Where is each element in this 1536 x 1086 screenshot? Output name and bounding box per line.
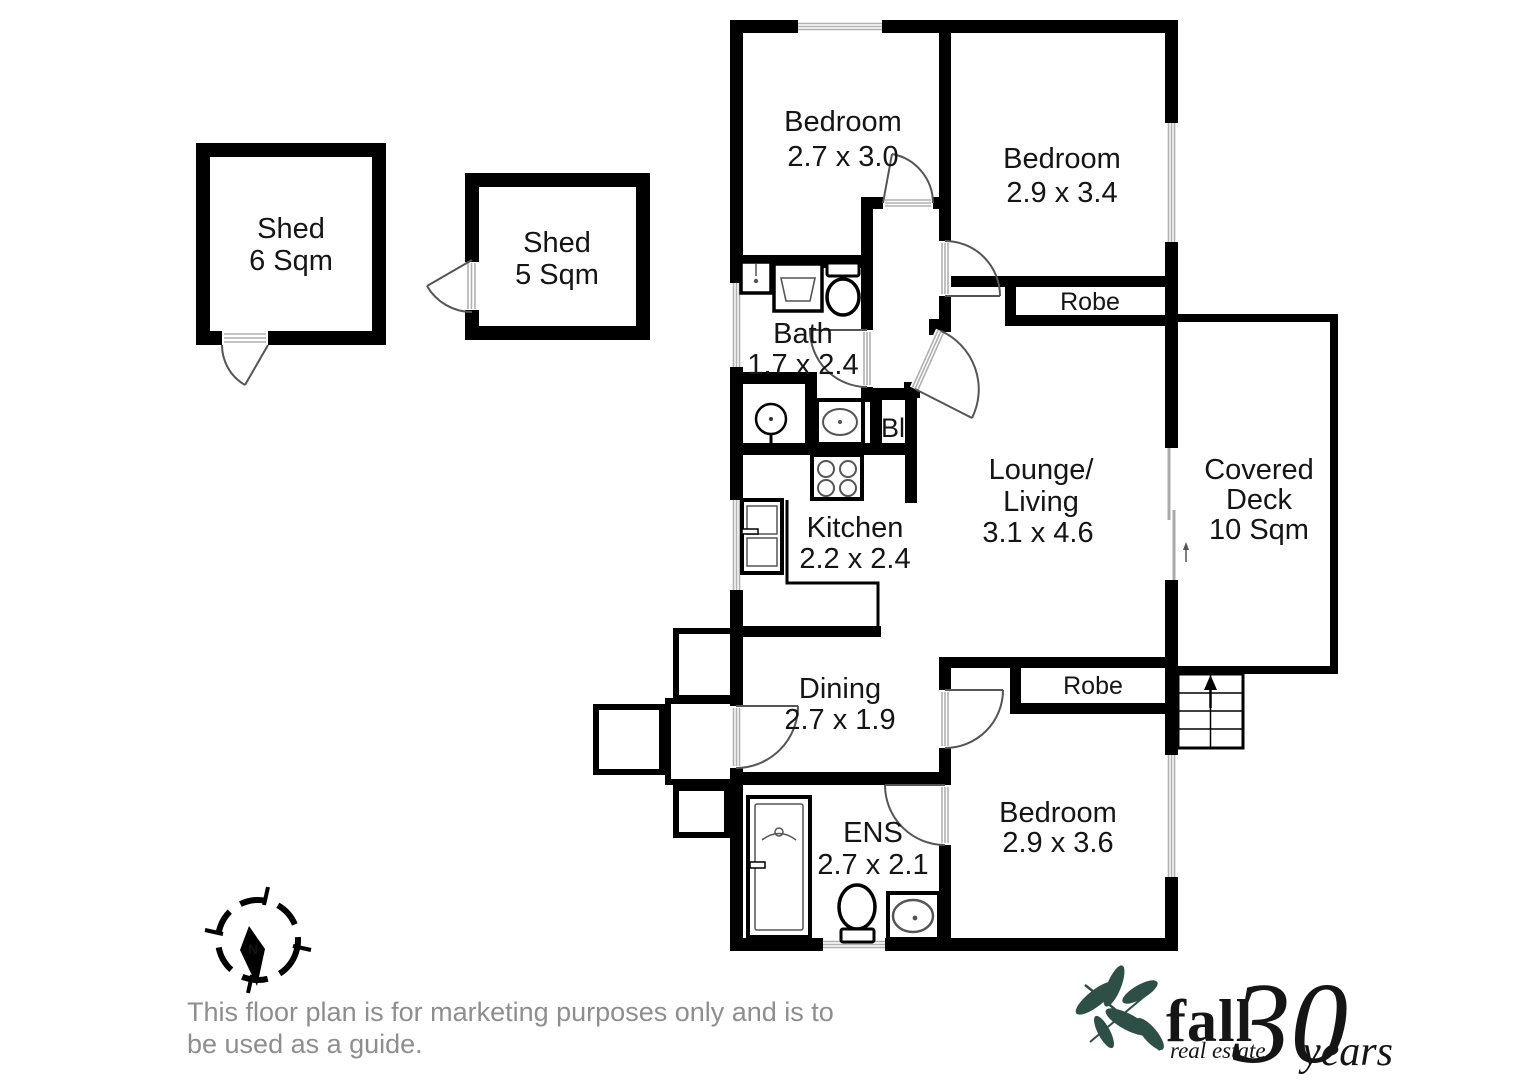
sink-icon [817, 400, 863, 444]
room-dims-deck: 10 Sqm [1209, 514, 1309, 546]
room-dims-kitchen: 2.2 x 2.4 [799, 543, 910, 575]
room-dims-bath: 1.7 x 2.4 [747, 349, 858, 381]
fridge-icon [742, 500, 782, 573]
room-dims-bedroom-top-right: 2.9 x 3.4 [1006, 177, 1117, 209]
toilet-icon [839, 885, 875, 942]
logo-tagline: real estate [1170, 1038, 1266, 1063]
floor-plan: Bedroom 2.7 x 3.0 Bedroom 2.9 x 3.4 Robe… [0, 0, 1536, 1086]
room-label-kitchen: Kitchen [807, 512, 904, 544]
vanity-basin-icon [888, 893, 939, 939]
basin-icon [741, 262, 771, 293]
door-icon [939, 241, 1000, 296]
room-dims-bedroom-bottom: 2.9 x 3.6 [1002, 827, 1113, 859]
disclaimer-line-2: be used as a guide. [187, 1029, 423, 1059]
door-icon [939, 690, 1003, 748]
toilet-icon [827, 263, 859, 315]
room-label-robe-bottom: Robe [1063, 672, 1123, 700]
room-label-bedroom-bottom: Bedroom [999, 797, 1117, 829]
laundry-tub-icon [774, 264, 822, 311]
stairs-icon [1178, 674, 1243, 748]
room-label-built-in: Bl [881, 413, 905, 443]
laundry-sink-icon [756, 404, 786, 448]
room-label-ensuite: ENS [843, 817, 903, 849]
room-dims-shed-small: 5 Sqm [515, 259, 599, 291]
room-dims-lounge: 3.1 x 4.6 [982, 517, 1093, 549]
disclaimer-line-1: This floor plan is for marketing purpose… [187, 997, 834, 1027]
room-dims-ensuite: 2.7 x 2.1 [817, 849, 928, 881]
room-dims-dining: 2.7 x 1.9 [784, 704, 895, 736]
logo-leaf-icon [1071, 963, 1168, 1054]
floor-plan-svg: Bedroom 2.7 x 3.0 Bedroom 2.9 x 3.4 Robe… [0, 0, 1536, 1086]
window-icon [795, 20, 885, 33]
room-label-deck-2: Deck [1226, 484, 1293, 516]
window-icon [1165, 120, 1178, 245]
shower-icon [748, 797, 810, 937]
room-label-shed-large: Shed [257, 213, 325, 245]
room-label-bath: Bath [773, 318, 833, 350]
door-icon [218, 330, 272, 385]
room-label-lounge-1: Lounge/ [989, 454, 1095, 486]
room-label-bedroom-top-left: Bedroom [784, 106, 902, 138]
room-label-shed-small: Shed [523, 227, 591, 259]
compass-icon: N [205, 887, 311, 993]
room-label-deck-1: Covered [1204, 454, 1314, 486]
door-icon [427, 258, 479, 314]
sliding-door-icon [1165, 445, 1189, 583]
room-dims-shed-large: 6 Sqm [249, 245, 333, 277]
compass-north-label: N [248, 941, 258, 957]
room-label-lounge-2: Living [1003, 486, 1079, 518]
logo-anniversary-word: years [1298, 1029, 1393, 1075]
room-label-robe-top: Robe [1060, 288, 1120, 316]
door-icon [912, 330, 978, 418]
window-icon [1165, 752, 1178, 880]
room-label-dining: Dining [799, 673, 881, 705]
entry-porch [596, 631, 733, 835]
agency-logo: 30 fall real estate years [1071, 960, 1393, 1086]
room-label-bedroom-top-right: Bedroom [1003, 143, 1121, 175]
stove-icon [812, 455, 862, 499]
room-dims-bedroom-top-left: 2.7 x 3.0 [787, 141, 898, 173]
